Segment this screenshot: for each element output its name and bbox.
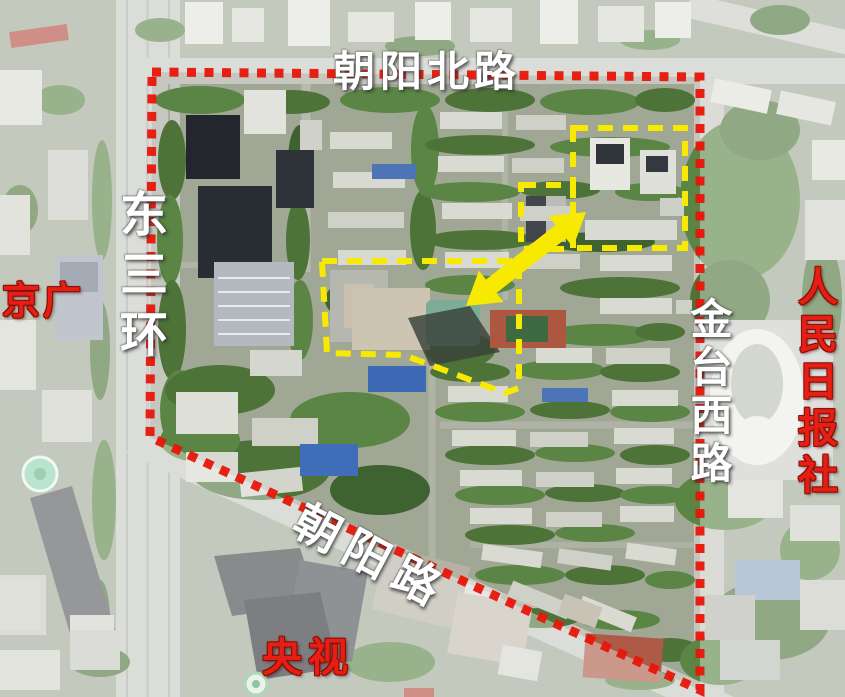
- road-label-east-third-ring: 东三环: [114, 189, 162, 369]
- landmark-label-peoples-daily: 人民日报社: [794, 266, 834, 501]
- landmark-label-cctv: 央视: [262, 638, 354, 678]
- map-figure: 朝阳北路 东三环 金台西路 朝阳路 人民日报社 京广 央视: [0, 0, 845, 697]
- road-label-chaoyang-north: 朝阳北路: [333, 51, 521, 93]
- road-label-jintai-west: 金台西路: [687, 297, 729, 489]
- landmark-label-jingguang: 京广: [2, 283, 84, 321]
